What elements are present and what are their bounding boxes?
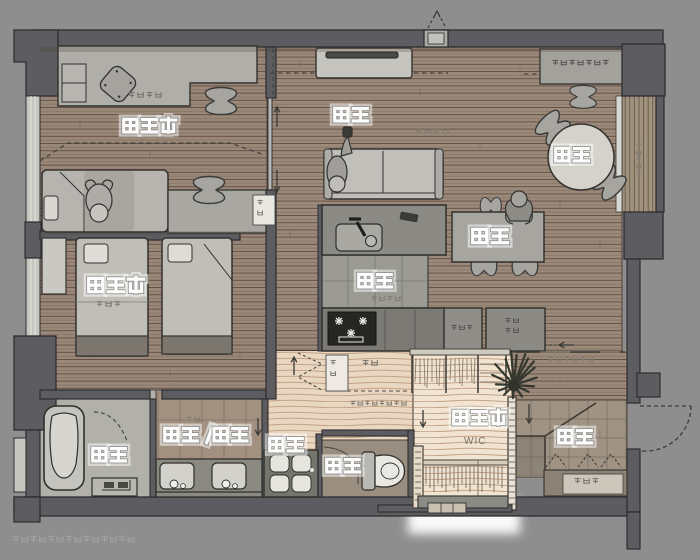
- svg-text:WIC: WIC: [464, 436, 486, 447]
